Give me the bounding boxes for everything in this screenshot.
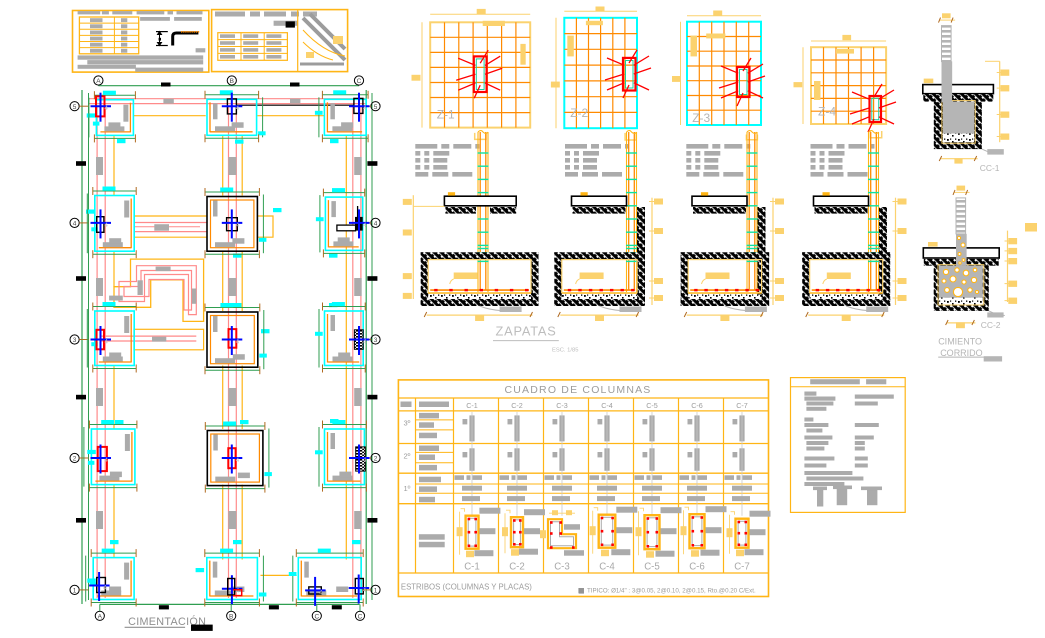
- svg-text:C-2: C-2: [509, 562, 525, 573]
- svg-text:C-4: C-4: [601, 401, 613, 410]
- svg-text:2º: 2º: [404, 452, 411, 461]
- svg-text:3º: 3º: [404, 419, 411, 428]
- svg-text:2: 2: [73, 456, 77, 463]
- svg-text:C-7: C-7: [734, 562, 750, 573]
- svg-text:4: 4: [73, 221, 77, 228]
- svg-text:C-5: C-5: [646, 401, 658, 410]
- svg-text:B: B: [230, 78, 234, 85]
- svg-text:A: A: [98, 614, 103, 621]
- svg-text:ESC. 1/85: ESC. 1/85: [552, 348, 578, 354]
- svg-text:C-5: C-5: [644, 562, 660, 573]
- svg-text:Z-4: Z-4: [818, 104, 836, 118]
- svg-text:B: B: [229, 614, 233, 621]
- svg-text:C-1: C-1: [464, 562, 480, 573]
- svg-text:CC-2: CC-2: [981, 320, 1001, 330]
- svg-text:5: 5: [374, 104, 378, 111]
- svg-text:TIPICO: Ø1/4" : 3@0.05, 2@0.: TIPICO: Ø1/4" : 3@0.05, 2@0.10, 2@0.15, …: [587, 587, 756, 594]
- svg-text:3: 3: [374, 337, 378, 344]
- svg-text:C: C: [314, 614, 319, 621]
- svg-text:A: A: [96, 78, 101, 85]
- svg-text:C-2: C-2: [511, 401, 523, 410]
- svg-text:C-3: C-3: [556, 401, 568, 410]
- svg-text:1º: 1º: [404, 484, 411, 493]
- svg-text:2: 2: [374, 456, 378, 463]
- svg-text:Z-3: Z-3: [692, 111, 710, 125]
- svg-text:Z-1: Z-1: [437, 108, 455, 122]
- svg-text:C-4: C-4: [599, 562, 615, 573]
- svg-text:CUADRO DE COLUMNAS: CUADRO DE COLUMNAS: [504, 384, 651, 396]
- svg-text:Z-2: Z-2: [570, 106, 588, 120]
- svg-text:1: 1: [374, 588, 378, 595]
- svg-text:C-7: C-7: [736, 401, 748, 410]
- svg-text:▦: ▦: [578, 587, 585, 594]
- svg-text:CC-1: CC-1: [980, 163, 1000, 173]
- svg-text:3: 3: [73, 337, 77, 344]
- svg-text:1: 1: [73, 588, 77, 595]
- svg-text:C-3: C-3: [554, 562, 570, 573]
- svg-text:5: 5: [73, 104, 77, 111]
- svg-text:C-6: C-6: [689, 562, 705, 573]
- svg-text:C: C: [357, 78, 362, 85]
- svg-text:ESTRIBOS (COLUMNAS Y PLACAS): ESTRIBOS (COLUMNAS Y PLACAS): [401, 583, 532, 592]
- svg-text:C: C: [358, 614, 363, 621]
- svg-text:C-6: C-6: [691, 401, 703, 410]
- svg-text:C-1: C-1: [466, 401, 478, 410]
- svg-text:ZAPATAS: ZAPATAS: [496, 324, 557, 339]
- svg-text:4: 4: [374, 221, 378, 228]
- svg-text:CIMIENTO: CIMIENTO: [938, 336, 982, 346]
